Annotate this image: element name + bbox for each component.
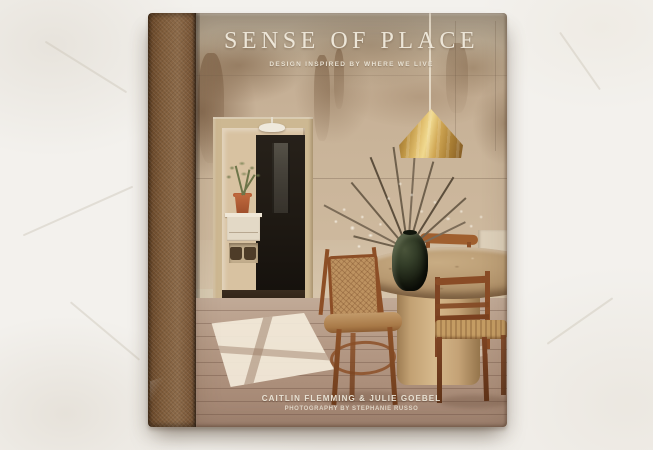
photo-scene: SENSE OF PLACE DESIGN INSPIRED BY WHERE … <box>0 0 653 450</box>
vase-mouth <box>403 230 417 235</box>
console-table <box>227 213 260 265</box>
chair-leg <box>501 335 506 395</box>
author-block: CAITLIN FLEMMING & JULIE GOEBEL PHOTOGRA… <box>196 394 507 412</box>
rush-chair-front <box>433 271 507 405</box>
book-cover: SENSE OF PLACE DESIGN INSPIRED BY WHERE … <box>196 13 507 427</box>
chair-mid-rail <box>436 302 489 309</box>
cover-photo-credit: PHOTOGRAPHY BY STEPHANIE RUSSO <box>196 406 507 412</box>
wall-seam <box>196 75 507 76</box>
cane-back-panel <box>327 254 380 321</box>
terracotta-pot <box>234 194 251 213</box>
console-drawers <box>227 217 260 241</box>
title-block: SENSE OF PLACE DESIGN INSPIRED BY WHERE … <box>196 28 507 68</box>
rush-seat <box>435 320 507 339</box>
chair-top-rail <box>435 276 490 286</box>
cover-subtitle: DESIGN INSPIRED BY WHERE WE LIVE <box>196 61 507 68</box>
plant-leaves <box>224 159 264 189</box>
drawer-divider <box>229 232 258 233</box>
spine-crease <box>150 377 164 402</box>
cane-chair-left <box>314 239 410 407</box>
ceiling-light <box>259 123 285 132</box>
book-spine <box>148 13 196 427</box>
chair-leg <box>349 333 355 401</box>
cover-title: SENSE OF PLACE <box>196 28 507 55</box>
basket <box>230 247 242 260</box>
book: SENSE OF PLACE DESIGN INSPIRED BY WHERE … <box>148 13 507 427</box>
cover-authors: CAITLIN FLEMMING & JULIE GOEBEL <box>196 394 507 403</box>
window-glimpse <box>272 143 290 213</box>
basket <box>244 247 256 260</box>
